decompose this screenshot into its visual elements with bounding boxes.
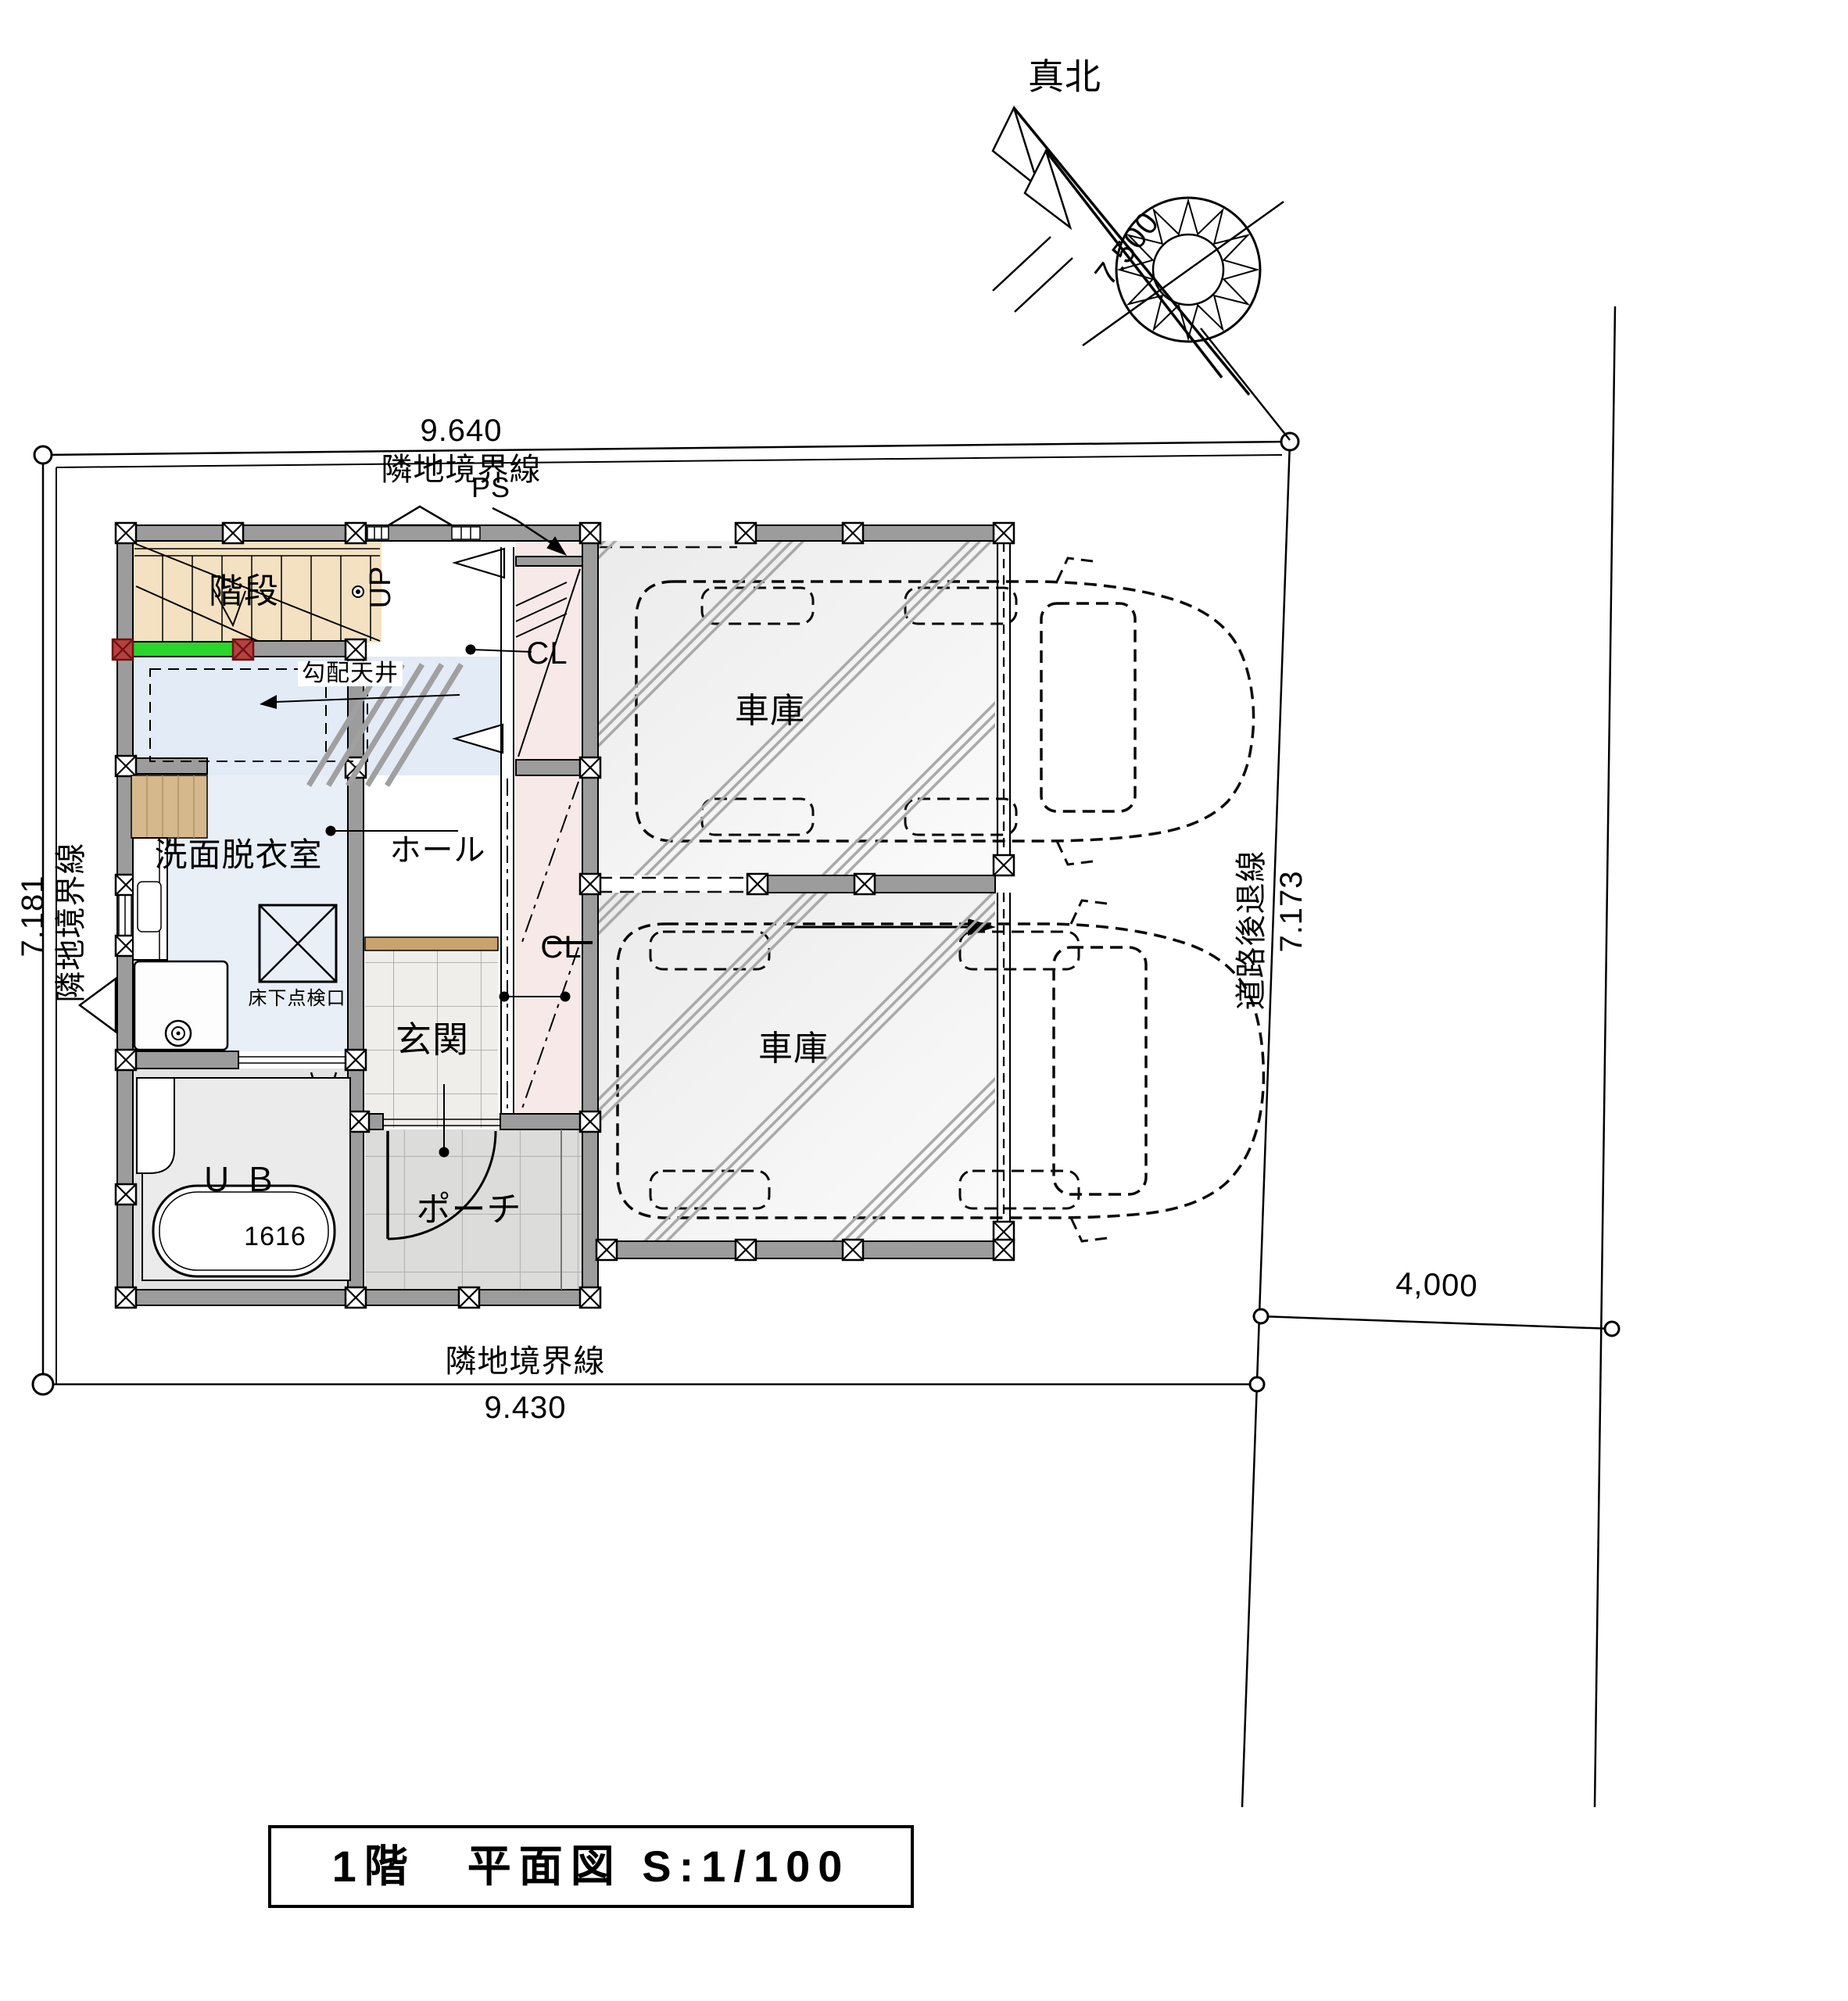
road-width-dim-line <box>1261 1316 1612 1329</box>
north-label: 真北 <box>1028 59 1101 95</box>
road-setback-line <box>1242 442 1290 1807</box>
road-setback-label: 道路後退線 <box>1236 850 1267 1011</box>
room-label-hall: ホール <box>390 835 486 866</box>
roof-vent-triangle <box>389 507 452 525</box>
room-label-garage-lower: 車庫 <box>758 1032 829 1066</box>
garage-shutter <box>997 542 1010 1223</box>
entrance-step <box>365 937 498 950</box>
room-label-bath: ＵＢ <box>200 1164 288 1197</box>
floor-plan-page: 真北 7.500 9.640 隣地境界線 隣地境界線 7.181 道路後退線 7… <box>0 0 1848 2001</box>
room-label-entrance: 玄関 <box>396 1022 469 1058</box>
room-label-porch: ポーチ <box>417 1193 522 1227</box>
dim-left: 7.181 <box>17 875 48 957</box>
compass <box>993 108 1290 440</box>
room-label-stairs: 階段 <box>209 575 279 609</box>
room-label-washroom: 洗面脱衣室 <box>154 839 322 872</box>
dim-right: 7.173 <box>1276 870 1307 952</box>
closet-label-lower: CL <box>540 932 582 963</box>
up-label: UP <box>366 566 396 609</box>
boundary-label-top: 隣地境界線 <box>381 454 542 485</box>
bathtub-size: 1616 <box>244 1223 306 1250</box>
wood-landing <box>131 775 207 838</box>
dim-bottom: 9.430 <box>484 1392 566 1423</box>
road-edge-line <box>1595 306 1615 1807</box>
stair-base-marker <box>113 639 253 660</box>
floor-hatch-label: 床下点検口 <box>249 990 346 1008</box>
shower-area <box>137 1078 174 1173</box>
dim-road-width: 4,000 <box>1395 1268 1478 1302</box>
boundary-label-bottom: 隣地境界線 <box>446 1346 606 1377</box>
sloped-ceiling-label: 勾配天井 <box>298 661 403 686</box>
north-arrowhead <box>993 108 1039 188</box>
boundary-label-left: 隣地境界線 <box>56 843 87 1003</box>
room-label-garage-upper: 車庫 <box>735 694 805 728</box>
title-block-text: 1階 平面図 S:1/100 <box>332 1845 851 1888</box>
closet-label-upper: CL <box>526 638 568 669</box>
dim-top: 9.640 <box>420 415 502 446</box>
washer-pan <box>134 961 227 1050</box>
ps-label: PS <box>471 474 510 502</box>
sliding-door-arrow-upper <box>455 549 504 578</box>
